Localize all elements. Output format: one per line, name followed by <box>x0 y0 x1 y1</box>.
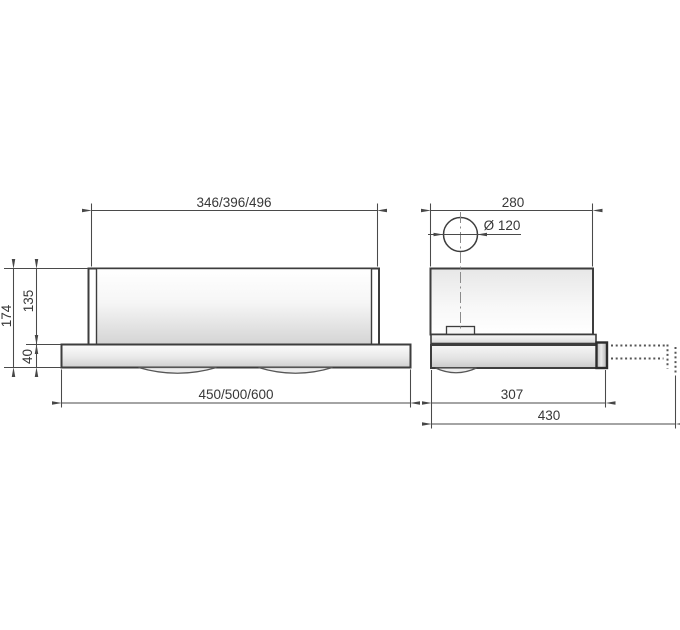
front-view <box>62 269 411 374</box>
side-body <box>431 269 594 335</box>
side-visor <box>431 345 597 368</box>
technical-drawing-page: 346/396/496 174 135 40 450/500/600 280 Ø… <box>0 0 680 630</box>
side-extended-depth-label: 430 <box>538 408 561 423</box>
side-body-depth-label: 307 <box>501 387 524 402</box>
duct-arrow-left <box>434 233 444 236</box>
dimension-drawing: 346/396/496 174 135 40 450/500/600 280 Ø… <box>0 0 680 630</box>
front-top-width-label: 346/396/496 <box>196 195 271 210</box>
front-lamp-left-arc <box>139 368 217 374</box>
front-visor-height-label: 40 <box>20 349 35 364</box>
side-top-depth-label: 280 <box>502 195 525 210</box>
side-visor-end-cap <box>597 343 608 369</box>
pullout-phantom-lines <box>611 345 676 375</box>
front-body-height-label: 135 <box>21 290 36 313</box>
duct-arrow-right <box>477 233 487 236</box>
front-lamp-right-arc <box>259 368 333 374</box>
side-view <box>431 212 676 374</box>
side-slide-bar <box>431 335 596 344</box>
front-visor-panel <box>62 345 411 368</box>
front-total-height-label: 174 <box>0 304 14 327</box>
front-body-inner <box>97 269 372 345</box>
duct-diameter-label: Ø 120 <box>484 218 521 233</box>
side-lamp-arc <box>436 368 477 373</box>
front-bottom-width-label: 450/500/600 <box>198 387 273 402</box>
